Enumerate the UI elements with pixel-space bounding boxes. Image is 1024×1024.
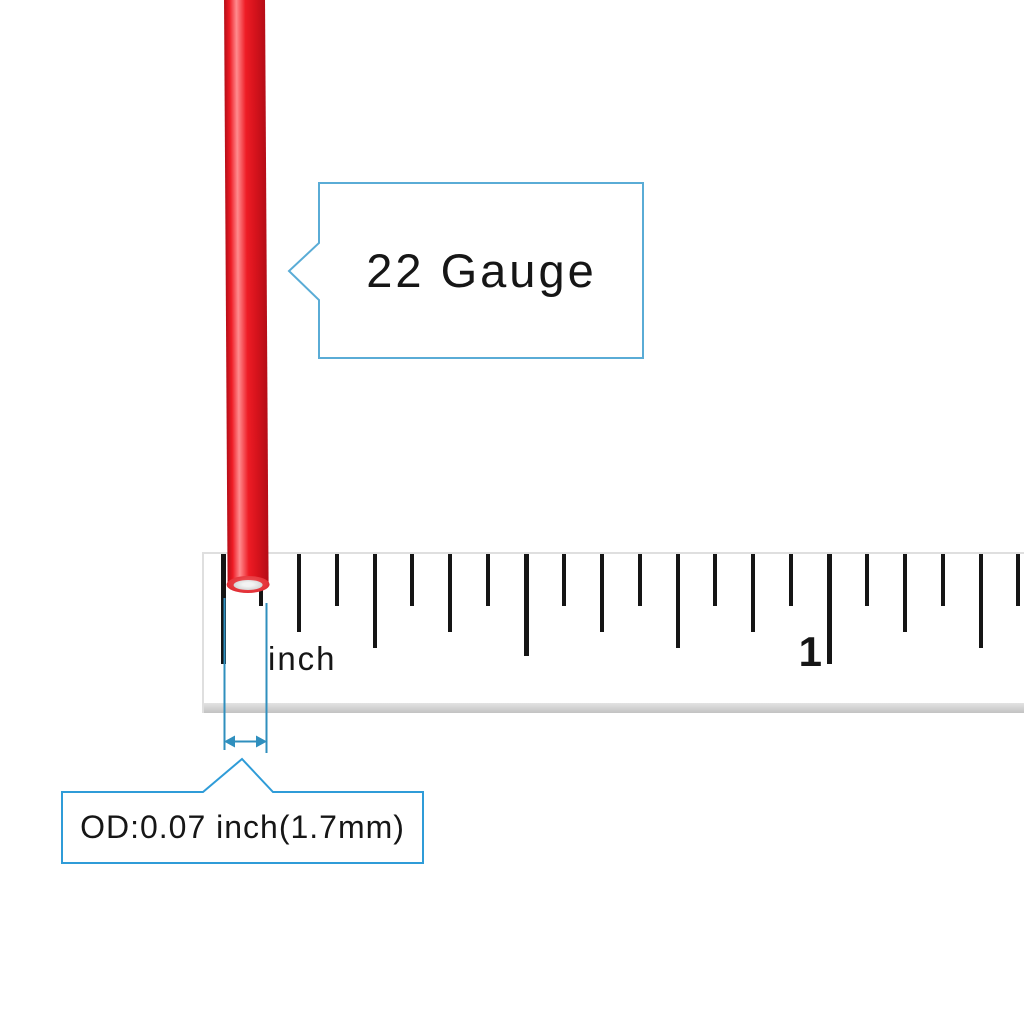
ruler-ticks [204, 554, 1024, 713]
od-callout-label: OD:0.07 inch(1.7mm) [62, 792, 423, 863]
ruler-tick [600, 554, 604, 632]
ruler-tick [638, 554, 642, 606]
wire-measurement-illustration: inch 1 22 Gauge OD:0.07 inch(1.7mm) [0, 0, 1024, 1024]
ruler-tick [751, 554, 755, 632]
arrowhead-right-icon [256, 736, 267, 748]
ruler-tick [903, 554, 907, 632]
ruler-tick [1016, 554, 1020, 606]
annotation-overlay [0, 0, 1024, 1024]
ruler-tick [373, 554, 377, 648]
ruler-tick [827, 554, 832, 664]
ruler-tick [297, 554, 301, 632]
ruler-tick [676, 554, 680, 648]
ruler-tick [486, 554, 490, 606]
ruler-tick [410, 554, 414, 606]
ruler-tick [713, 554, 717, 606]
ruler: inch 1 [202, 552, 1024, 713]
ruler-unit-label: inch [268, 640, 337, 678]
ruler-inch-1-label: 1 [780, 628, 822, 676]
red-wire [224, 0, 269, 594]
red-wire-body [224, 0, 269, 586]
ruler-tick [221, 554, 226, 664]
ruler-tick [524, 554, 529, 656]
ruler-bottom-edge [204, 703, 1024, 713]
ruler-tick [448, 554, 452, 632]
ruler-tick [562, 554, 566, 606]
ruler-tick [979, 554, 983, 648]
ruler-tick [941, 554, 945, 606]
gauge-callout-label: 22 Gauge [319, 183, 644, 358]
ruler-tick [789, 554, 793, 606]
ruler-tick [865, 554, 869, 606]
arrowhead-left-icon [224, 736, 235, 748]
ruler-tick [335, 554, 339, 606]
